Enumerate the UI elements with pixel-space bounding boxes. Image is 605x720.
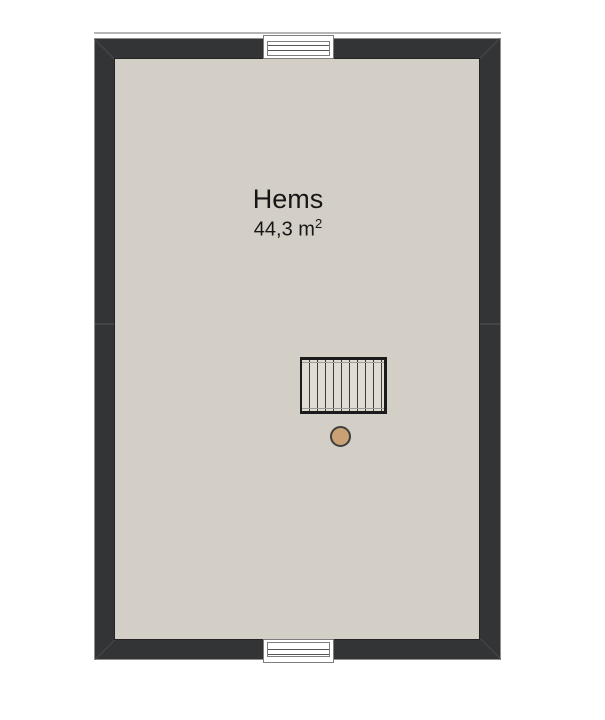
room-area: 44,3 m2 bbox=[253, 217, 324, 241]
stair-stringer bbox=[302, 362, 384, 363]
wall-seam bbox=[95, 323, 115, 325]
room-label: Hems 44,3 m2 bbox=[253, 184, 324, 241]
wall-seam bbox=[479, 323, 500, 325]
eave-outline bbox=[94, 32, 501, 34]
window-bottom bbox=[263, 639, 334, 663]
window-top bbox=[263, 35, 334, 59]
room-floor bbox=[115, 59, 479, 639]
window-glass-lines bbox=[268, 45, 329, 51]
room-name: Hems bbox=[253, 184, 324, 215]
staircase-symbol bbox=[300, 357, 387, 414]
window-glass-lines bbox=[268, 649, 329, 655]
room-area-value: 44,3 m bbox=[254, 219, 315, 241]
stair-stringer bbox=[302, 408, 384, 409]
stair-treads bbox=[302, 360, 384, 411]
room-area-exponent: 2 bbox=[315, 216, 322, 231]
floor-plan-canvas: Hems 44,3 m2 bbox=[0, 0, 605, 720]
round-support-post bbox=[330, 426, 351, 447]
